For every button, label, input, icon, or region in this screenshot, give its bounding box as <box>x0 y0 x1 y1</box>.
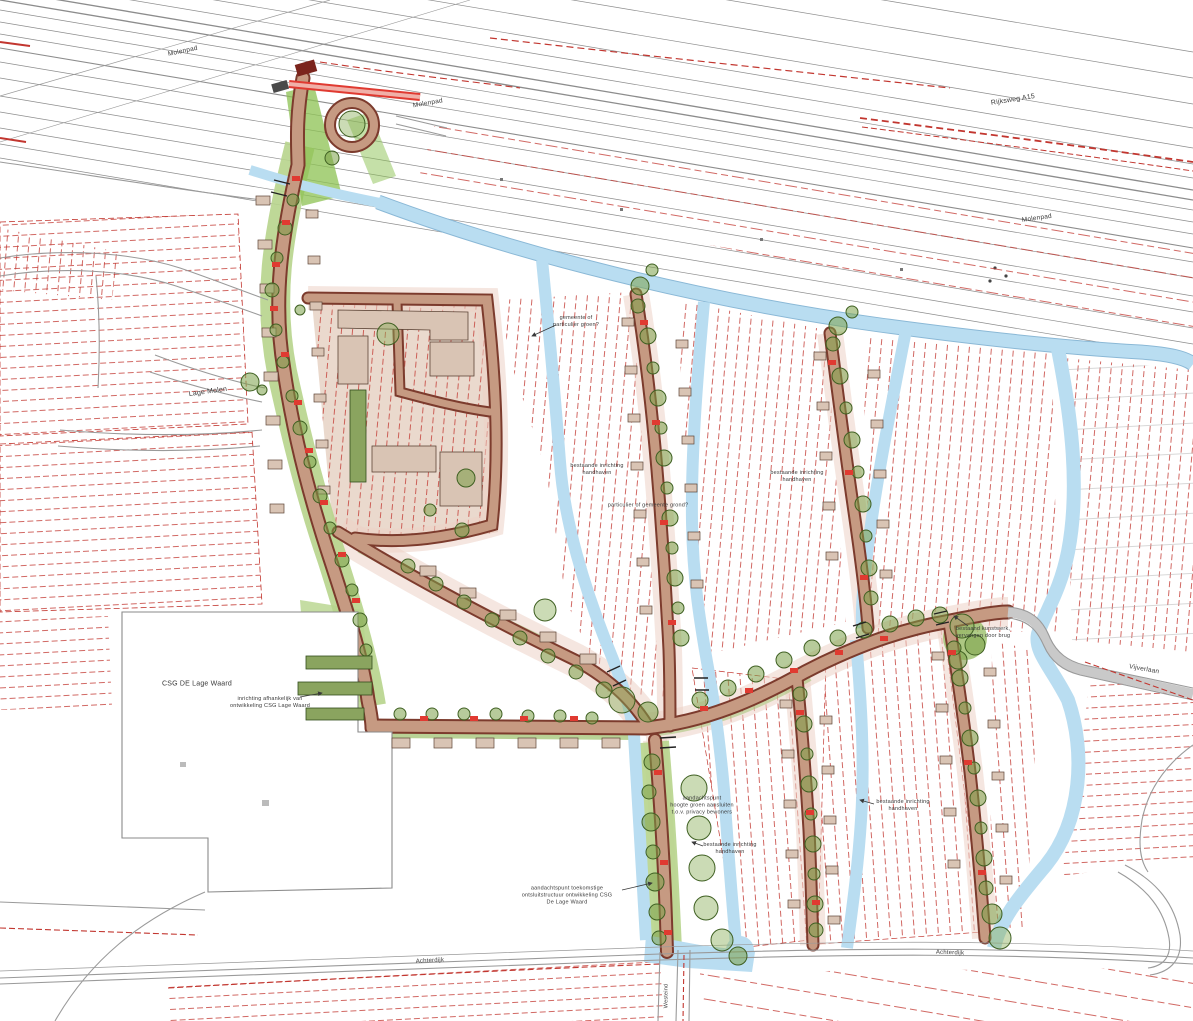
plan-canvas: MolenpadMolenpadRijksweg A15MolenpadLage… <box>0 0 1193 1021</box>
plan-drawing <box>0 0 1193 1021</box>
parcel-regions <box>0 122 1193 1021</box>
